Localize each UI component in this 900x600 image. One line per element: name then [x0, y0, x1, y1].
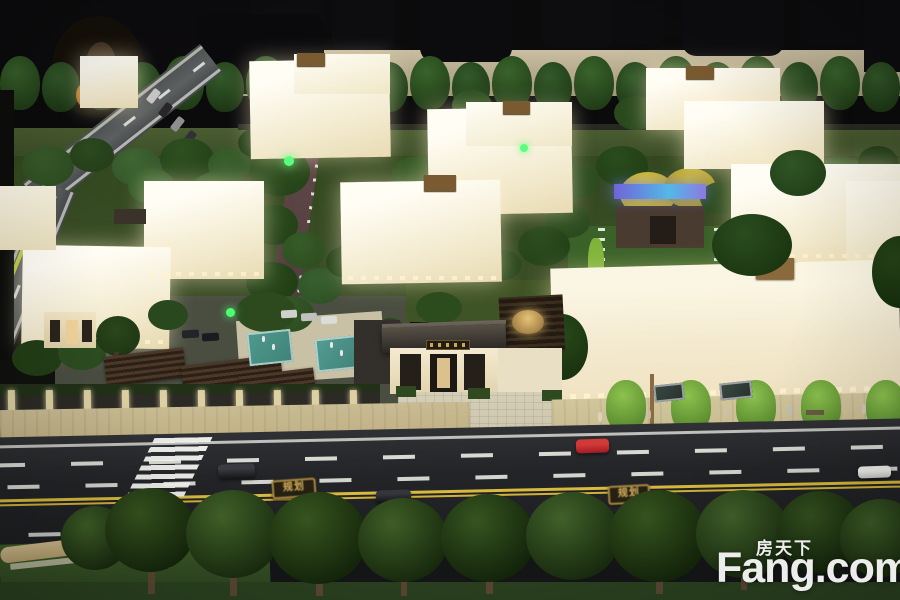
gate-doorway — [464, 354, 485, 390]
parked-car — [202, 333, 219, 342]
far-tree — [410, 56, 450, 110]
led-tree-glow — [520, 144, 528, 152]
visitor-silhouette — [542, 0, 614, 48]
building-block — [0, 186, 56, 250]
led-tree-glow — [284, 156, 294, 166]
avenue-tree — [186, 490, 280, 578]
avenue-tree — [105, 488, 195, 572]
building-base-lights — [348, 276, 496, 280]
wooden-pole — [650, 374, 654, 426]
pedestrian-figure — [788, 406, 791, 415]
lane-dash — [227, 458, 259, 463]
landscape-tree — [22, 146, 74, 186]
car-white — [858, 465, 891, 478]
foreground-canopy-tree — [416, 292, 462, 324]
lane-dash — [539, 451, 571, 456]
lane-dash — [71, 461, 103, 466]
gate-name-board-chars — [430, 343, 466, 347]
lane-dash — [787, 468, 819, 473]
roof-sign-tag — [297, 53, 325, 66]
parked-car — [301, 313, 317, 322]
sports-court — [246, 329, 293, 366]
pedestrian-figure — [648, 410, 651, 419]
lane-dash — [851, 445, 883, 450]
led-tree-glow — [226, 308, 235, 317]
avenue-tree — [358, 498, 448, 582]
lane-dash — [475, 475, 507, 480]
umbrella-tree — [96, 316, 140, 356]
sidewalk-billboard — [653, 382, 685, 402]
pavilion-door — [650, 216, 676, 244]
building-base-lights — [150, 272, 260, 276]
visitor-silhouette — [682, 0, 784, 56]
lane-dash — [709, 470, 741, 475]
gate-doorway — [400, 354, 421, 390]
avenue-tree — [269, 492, 367, 584]
visitor-silhouette — [612, 0, 664, 44]
car-dark — [218, 463, 255, 478]
lane-dash — [397, 476, 429, 481]
pedestrian-figure — [724, 408, 727, 417]
lane-dash — [553, 473, 585, 478]
pedestrian-figure — [598, 412, 602, 422]
gate-planter — [396, 386, 416, 397]
lane-dash — [631, 472, 663, 477]
visitor-silhouette — [332, 0, 394, 50]
foreground-canopy-tree — [712, 214, 792, 276]
landscape-tree — [70, 138, 114, 172]
lane-dash — [773, 447, 805, 452]
far-tree — [574, 56, 614, 110]
gate-planter — [468, 388, 490, 399]
parked-car — [182, 330, 199, 339]
roof-sign-tag — [424, 175, 456, 191]
bench — [806, 410, 824, 415]
roof-sign-tag — [686, 66, 714, 79]
pavilion-led-roof — [614, 184, 706, 199]
parked-car — [321, 316, 337, 325]
far-tree — [820, 56, 860, 110]
lane-dash — [7, 485, 39, 490]
gate-door-glow — [437, 358, 450, 388]
gate-basket-lamp — [512, 310, 544, 334]
building-block — [340, 180, 502, 285]
scale-model-photo: 规划 规划 房天下 Fang.com — [0, 0, 900, 600]
far-tree — [862, 62, 900, 112]
parked-car — [281, 310, 297, 319]
landscape-tree — [518, 226, 570, 266]
street-dash — [123, 116, 136, 127]
side-gate-door-glow — [66, 320, 78, 344]
side-gate-door — [82, 320, 92, 342]
lane-dash — [241, 480, 273, 485]
street-dash — [13, 285, 21, 299]
lane-dash — [85, 483, 117, 488]
avenue-tree — [526, 492, 620, 580]
roof-sign-tag — [503, 101, 530, 114]
lane-dash — [695, 448, 727, 453]
court-figure — [272, 344, 275, 350]
gate-wing-wall — [498, 348, 562, 394]
lane-dash — [305, 456, 337, 461]
roof-sign-tag — [114, 209, 146, 224]
car-red — [576, 438, 609, 453]
visitor-silhouette — [800, 0, 862, 46]
side-gate-door — [50, 320, 60, 342]
street-dash — [193, 62, 206, 73]
visitor-silhouette — [420, 0, 512, 62]
foreground-canopy-tree — [770, 150, 826, 196]
avenue-tree — [441, 494, 535, 582]
landscape-tree — [282, 232, 326, 268]
lane-dash — [617, 450, 649, 455]
court-figure — [262, 336, 265, 342]
fang-watermark-chinese: 房天下 — [756, 534, 813, 559]
avenue-tree — [609, 490, 707, 582]
court-figure — [340, 350, 343, 356]
court-figure — [330, 342, 333, 348]
building-block — [80, 56, 138, 108]
lane-dash — [28, 532, 60, 537]
lane-dash — [461, 453, 493, 458]
lane-dash — [319, 478, 351, 483]
fang-watermark: 房天下 Fang.com — [716, 534, 900, 590]
pedestrian-figure — [862, 404, 866, 414]
foreground-canopy-tree — [148, 300, 188, 330]
sidewalk-billboard — [719, 380, 753, 400]
lane-dash — [0, 463, 25, 468]
far-tree — [42, 62, 80, 112]
lane-dash — [383, 455, 415, 460]
